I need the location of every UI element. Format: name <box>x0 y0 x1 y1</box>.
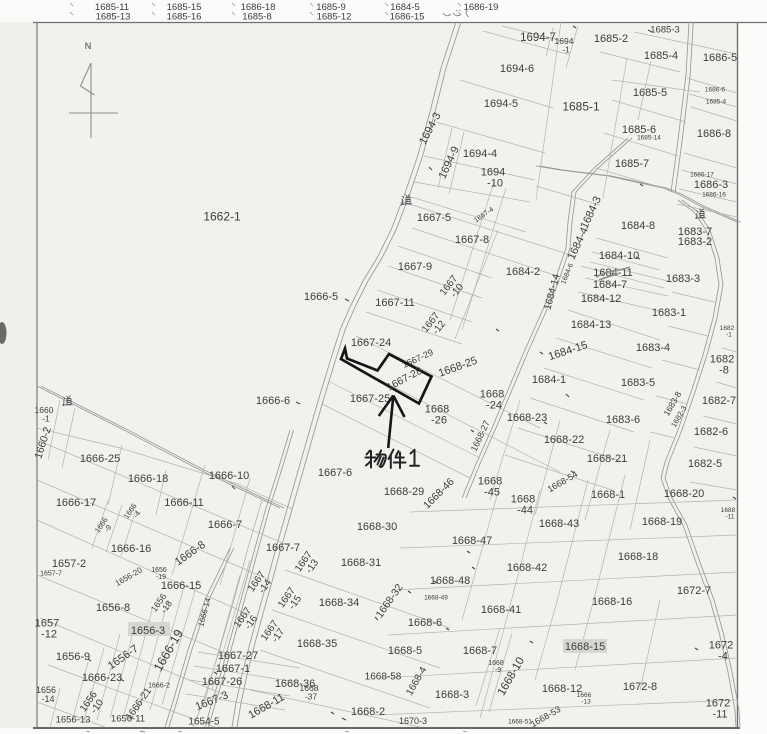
svg-text:1667-1: 1667-1 <box>216 663 250 675</box>
svg-text:1683-6: 1683-6 <box>606 414 640 426</box>
svg-text:1666-18: 1666-18 <box>128 473 168 485</box>
svg-text:1666-11: 1666-11 <box>164 497 204 509</box>
svg-text:1666-5: 1666-5 <box>304 291 338 303</box>
svg-text:1686-5: 1686-5 <box>703 52 737 64</box>
svg-text:1656-11: 1656-11 <box>111 713 145 724</box>
svg-text:1666-10: 1666-10 <box>209 470 249 482</box>
svg-text:1684-8: 1684-8 <box>621 220 655 232</box>
svg-text:1657-7: 1657-7 <box>40 571 62 578</box>
svg-text:-24: -24 <box>486 400 502 412</box>
svg-text:1686-3: 1686-3 <box>694 179 728 191</box>
svg-text:1685-16: 1685-16 <box>167 12 202 23</box>
svg-text:1668-47: 1668-47 <box>452 535 492 547</box>
svg-text:1668-48: 1668-48 <box>430 575 470 587</box>
svg-text:1683-2: 1683-2 <box>678 236 712 248</box>
svg-text:1683-3: 1683-3 <box>666 273 700 285</box>
svg-text:-11: -11 <box>712 709 727 721</box>
svg-text:1668-42: 1668-42 <box>507 562 547 574</box>
svg-text:1686-16: 1686-16 <box>702 191 726 198</box>
svg-text:1684-7: 1684-7 <box>593 279 627 291</box>
svg-text:1656-3: 1656-3 <box>131 625 165 637</box>
svg-text:-37: -37 <box>305 692 318 702</box>
svg-text:-45: -45 <box>484 487 500 499</box>
svg-text:1654-5: 1654-5 <box>188 717 220 728</box>
svg-text:1666-15: 1666-15 <box>161 580 201 592</box>
svg-text:1668-5: 1668-5 <box>388 645 422 657</box>
svg-text:1682-5: 1682-5 <box>688 458 722 470</box>
svg-text:-1: -1 <box>42 414 50 424</box>
svg-text:1667-27: 1667-27 <box>218 650 258 662</box>
svg-text:1685-14: 1685-14 <box>637 134 661 141</box>
svg-text:1694-4: 1694-4 <box>463 148 497 160</box>
svg-text:1685-13: 1685-13 <box>96 12 131 23</box>
svg-text:1668-3: 1668-3 <box>435 689 469 701</box>
svg-text:1683-5: 1683-5 <box>621 377 655 389</box>
svg-text:1662-1: 1662-1 <box>203 209 241 223</box>
svg-text:1668-6: 1668-6 <box>408 617 442 629</box>
svg-text:1685-4: 1685-4 <box>644 50 678 62</box>
svg-text:1685-1: 1685-1 <box>562 99 600 113</box>
svg-text:1686-15: 1686-15 <box>390 12 425 23</box>
svg-text:1668-18: 1668-18 <box>618 551 658 563</box>
svg-text:-10: -10 <box>487 178 503 190</box>
svg-text:1666-6: 1666-6 <box>256 395 290 407</box>
svg-text:1694-5: 1694-5 <box>484 98 518 110</box>
svg-text:1685-5: 1685-5 <box>633 87 667 99</box>
svg-text:1668-1: 1668-1 <box>591 489 625 501</box>
svg-text:1668-7: 1668-7 <box>463 645 497 657</box>
svg-text:1683-4: 1683-4 <box>636 342 670 354</box>
svg-text:1686-6: 1686-6 <box>705 86 726 93</box>
svg-text:1684-13: 1684-13 <box>571 319 611 331</box>
svg-text:1667-24: 1667-24 <box>351 337 391 349</box>
svg-text:1656-9: 1656-9 <box>56 651 90 663</box>
svg-text:1686-19: 1686-19 <box>464 2 499 13</box>
svg-text:1685-2: 1685-2 <box>594 33 628 45</box>
svg-text:1668-22: 1668-22 <box>544 434 584 446</box>
svg-text:1668-21: 1668-21 <box>587 453 627 465</box>
svg-text:1668-35: 1668-35 <box>297 638 337 650</box>
svg-text:1666-16: 1666-16 <box>111 543 151 555</box>
svg-text:1684-12: 1684-12 <box>581 293 621 305</box>
svg-text:-14: -14 <box>41 694 54 704</box>
svg-text:-8: -8 <box>719 365 729 377</box>
svg-text:1682-6: 1682-6 <box>694 426 728 438</box>
svg-text:1666-2: 1666-2 <box>148 683 170 690</box>
svg-text:1683-1: 1683-1 <box>652 307 686 319</box>
svg-text:1685-7: 1685-7 <box>615 158 649 170</box>
svg-text:1684-2: 1684-2 <box>506 266 540 278</box>
svg-text:1685-8: 1685-8 <box>242 12 272 23</box>
svg-text:1668-29: 1668-29 <box>384 486 424 498</box>
svg-text:1668-2: 1668-2 <box>351 706 385 718</box>
svg-text:1668-23: 1668-23 <box>507 412 547 424</box>
svg-text:N: N <box>85 41 92 51</box>
svg-text:-1: -1 <box>726 332 732 339</box>
svg-text:1686-8: 1686-8 <box>697 128 731 140</box>
svg-text:1668-51: 1668-51 <box>508 718 532 725</box>
svg-text:1666-25: 1666-25 <box>80 453 120 465</box>
svg-text:1668-16: 1668-16 <box>592 596 632 608</box>
svg-text:1667-6: 1667-6 <box>318 467 352 479</box>
svg-text:1667-9: 1667-9 <box>398 261 432 273</box>
svg-text:-11: -11 <box>726 514 735 521</box>
svg-text:1668-34: 1668-34 <box>319 597 359 609</box>
svg-text:1668: 1668 <box>488 660 504 667</box>
svg-text:1684-1: 1684-1 <box>532 374 566 386</box>
svg-text:1667-8: 1667-8 <box>455 234 489 246</box>
svg-text:1656-8: 1656-8 <box>96 602 130 614</box>
svg-text:1666-7: 1666-7 <box>208 519 242 531</box>
svg-text:1685-12: 1685-12 <box>317 12 352 23</box>
svg-text:1668-31: 1668-31 <box>341 557 381 569</box>
svg-text:1667-25: 1667-25 <box>350 393 390 405</box>
svg-text:1657-2: 1657-2 <box>52 558 86 570</box>
svg-text:1685-4: 1685-4 <box>706 98 727 105</box>
svg-text:-4: -4 <box>718 651 728 663</box>
svg-text:-44: -44 <box>517 505 533 517</box>
svg-text:1682-7: 1682-7 <box>702 395 736 407</box>
svg-text:-12: -12 <box>41 629 57 641</box>
svg-text:1694-7: 1694-7 <box>520 32 556 44</box>
svg-text:1667-26: 1667-26 <box>202 676 242 688</box>
svg-text:1672-7: 1672-7 <box>677 585 711 597</box>
svg-text:1668-15: 1668-15 <box>565 641 605 653</box>
svg-text:-1: -1 <box>562 45 570 55</box>
svg-text:1668-58: 1668-58 <box>365 672 402 683</box>
svg-text:1656: 1656 <box>151 567 167 574</box>
svg-text:1668-19: 1668-19 <box>642 516 682 528</box>
svg-text:1668-41: 1668-41 <box>481 604 521 616</box>
svg-text:1666-23: 1666-23 <box>82 672 122 684</box>
svg-text:-9: -9 <box>495 667 501 674</box>
svg-text:1670-3: 1670-3 <box>399 716 427 726</box>
svg-text:1656-13: 1656-13 <box>56 714 91 725</box>
svg-text:1672-8: 1672-8 <box>623 681 657 693</box>
svg-text:1667-5: 1667-5 <box>417 212 451 224</box>
svg-text:1668-49: 1668-49 <box>424 594 448 601</box>
svg-text:1668-20: 1668-20 <box>664 488 704 500</box>
svg-text:1684-10: 1684-10 <box>599 250 639 262</box>
svg-text:1666-17: 1666-17 <box>56 497 96 509</box>
svg-text:1686-17: 1686-17 <box>690 171 714 178</box>
svg-text:-26: -26 <box>431 415 447 427</box>
svg-text:1667-11: 1667-11 <box>375 297 415 309</box>
svg-text:-13: -13 <box>581 699 591 706</box>
svg-text:1667-7: 1667-7 <box>266 542 300 554</box>
svg-text:1694-6: 1694-6 <box>500 63 534 75</box>
svg-text:1668-43: 1668-43 <box>539 518 579 530</box>
svg-text:1685-3: 1685-3 <box>650 24 680 35</box>
svg-text:1668-30: 1668-30 <box>357 521 397 533</box>
